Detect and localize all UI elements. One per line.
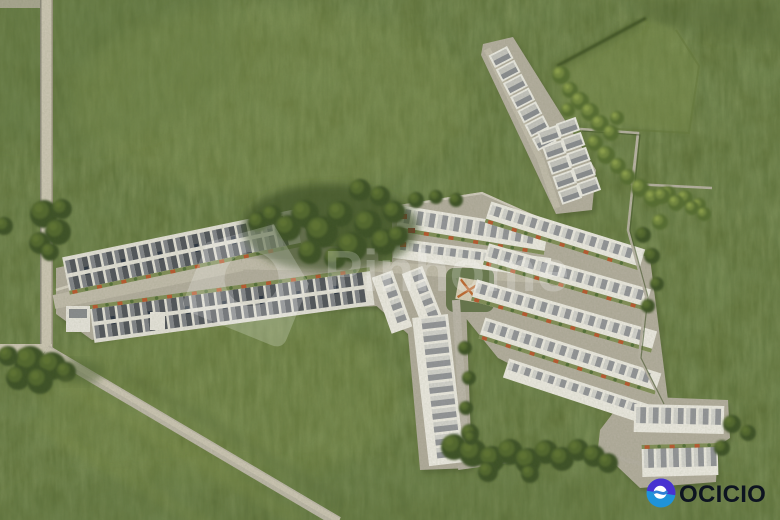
svg-text:Pinhome: Pinhome — [324, 239, 569, 304]
svg-text:OCICIO: OCICIO — [679, 481, 766, 508]
